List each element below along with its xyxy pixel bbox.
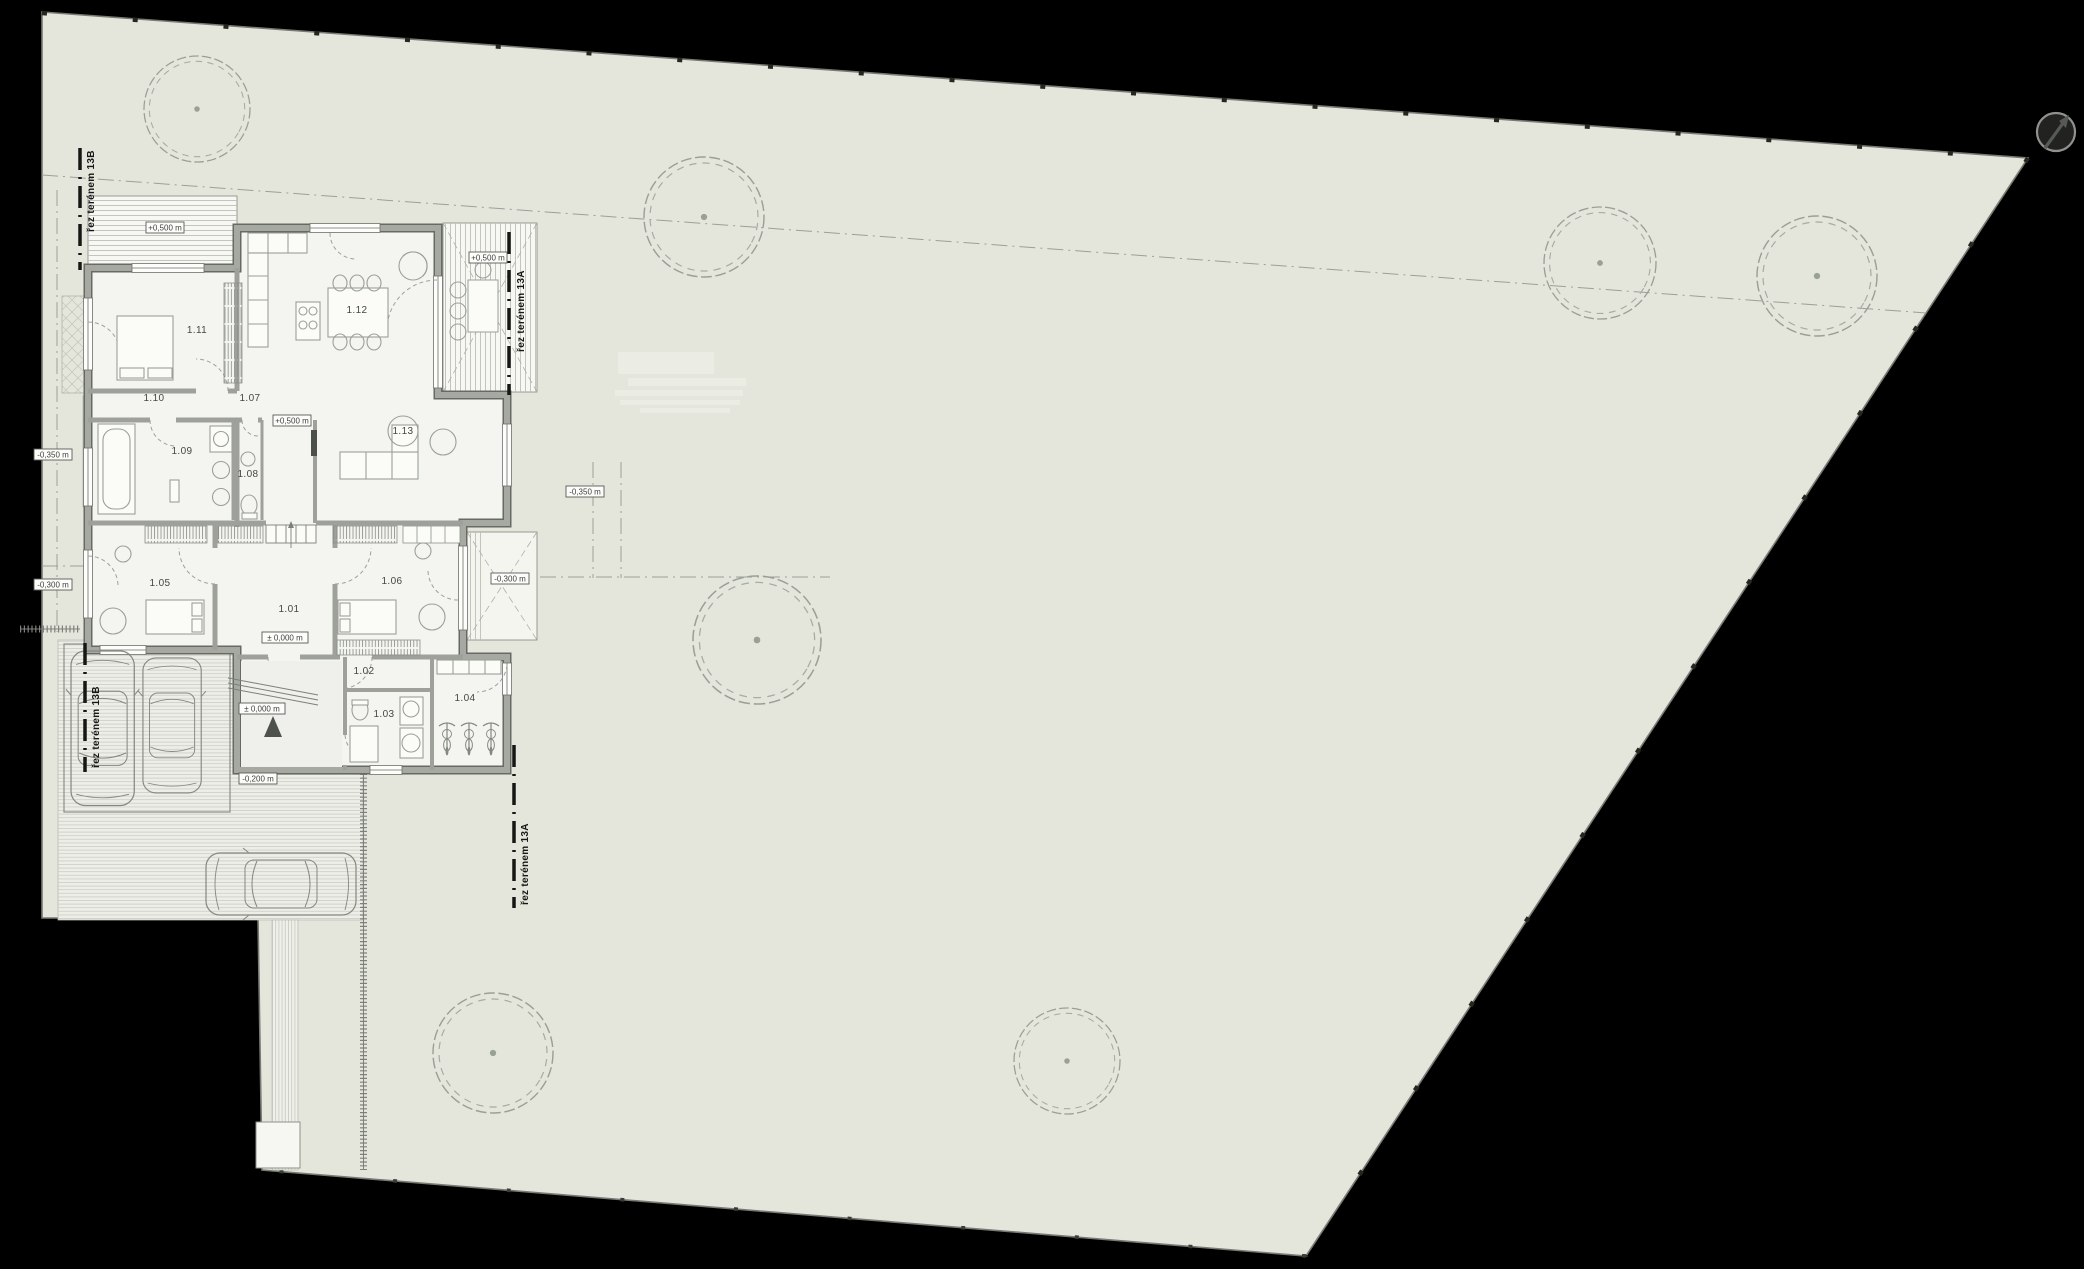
section-label-13b-north: řez terénem 13B: [86, 150, 97, 232]
window-kitchen-north: [310, 224, 380, 233]
room-label-1-04: 1.04: [454, 693, 475, 704]
window-living-east: [503, 424, 512, 486]
room-label-1-07: 1.07: [239, 393, 260, 404]
window-bedroom105-south: [100, 646, 146, 655]
window-bedroom105-west: [84, 550, 93, 618]
cabinet-row: [403, 526, 460, 543]
level-garden-east: -0,300 m: [491, 573, 529, 584]
bathtub: [98, 424, 135, 514]
svg-text:-0,300 m: -0,300 m: [494, 575, 526, 584]
door-kitchen-east: [434, 276, 443, 388]
level-deck-north: +0,500 m: [146, 222, 184, 233]
svg-text:-0,350 m: -0,350 m: [37, 451, 69, 460]
section-label-13b-south: řez terénem 13B: [91, 686, 102, 768]
level-garden-west-mid: -0,350 m: [34, 449, 72, 460]
room-label-1-02: 1.02: [353, 666, 374, 677]
north-arrow: [2037, 113, 2075, 151]
section-label-13a-north: řez terénem 13A: [516, 270, 527, 352]
window-bath103-south: [370, 766, 402, 775]
room-label-1-01: 1.01: [278, 604, 299, 615]
room-label-1-05: 1.05: [149, 578, 170, 589]
svg-text:-0,200 m: -0,200 m: [242, 775, 274, 784]
room-label-1-08: 1.08: [237, 469, 258, 480]
svg-text:± 0,000 m: ± 0,000 m: [244, 705, 280, 714]
svg-text:-0,350 m: -0,350 m: [569, 488, 601, 497]
svg-text:± 0,000 m: ± 0,000 m: [267, 634, 303, 643]
kitchen-island-cooktop: [296, 302, 320, 340]
tv-panel: [311, 430, 317, 456]
level-garden-west: -0,300 m: [34, 579, 72, 590]
door-terrace-north: [132, 264, 204, 273]
level-entry: ± 0,000 m: [239, 703, 285, 714]
level-corridor: +0,500 m: [273, 415, 311, 426]
door-bedroom106-east: [459, 546, 468, 630]
gate-pad: [256, 1122, 300, 1168]
room-label-1-10: 1.10: [143, 393, 164, 404]
room-label-1-09: 1.09: [171, 446, 192, 457]
room-label-1-11: 1.11: [187, 325, 207, 336]
svg-text:+0,500 m: +0,500 m: [471, 254, 505, 263]
terrace-east-bedroom: [467, 532, 537, 640]
site-plan-drawing: řez terénem 13B řez terénem 13B řez teré…: [0, 0, 2084, 1269]
site-plan-canvas: řez terénem 13B řez terénem 13B řez teré…: [0, 0, 2084, 1269]
level-deck-east: +0,500 m: [469, 252, 507, 263]
bed-106: [338, 600, 396, 634]
level-entry-exterior: -0,200 m: [239, 773, 277, 784]
cabinet-104: [437, 660, 501, 674]
room-label-1-06: 1.06: [381, 576, 402, 587]
window-bath-west: [84, 448, 93, 506]
section-label-13a-south: řez terénem 13A: [520, 823, 531, 905]
room-label-1-13: 1.13: [392, 426, 413, 437]
svg-text:+0,500 m: +0,500 m: [148, 224, 182, 233]
svg-text:+0,500 m: +0,500 m: [275, 417, 309, 426]
bed-111: [117, 316, 173, 380]
svg-text:-0,300 m: -0,300 m: [37, 581, 69, 590]
bed-105: [146, 600, 204, 634]
wardrobe-111: [224, 283, 242, 383]
level-hall: ± 0,000 m: [262, 632, 308, 643]
room-label-1-03: 1.03: [373, 709, 394, 720]
level-garden-east-living: -0,350 m: [566, 486, 604, 497]
window-bedroom111-west: [84, 298, 93, 370]
room-label-1-12: 1.12: [346, 305, 367, 316]
